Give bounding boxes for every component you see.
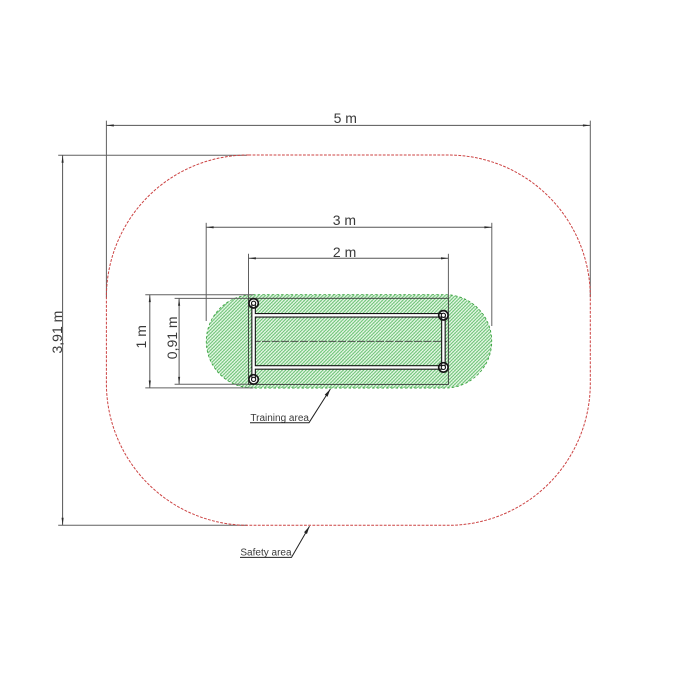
svg-text:1 m: 1 m [133, 325, 149, 348]
svg-text:3,91 m: 3,91 m [49, 311, 65, 354]
svg-text:0,91 m: 0,91 m [164, 316, 180, 359]
svg-text:5 m: 5 m [334, 110, 357, 126]
svg-text:2 m: 2 m [333, 244, 356, 260]
svg-text:3 m: 3 m [333, 212, 356, 228]
